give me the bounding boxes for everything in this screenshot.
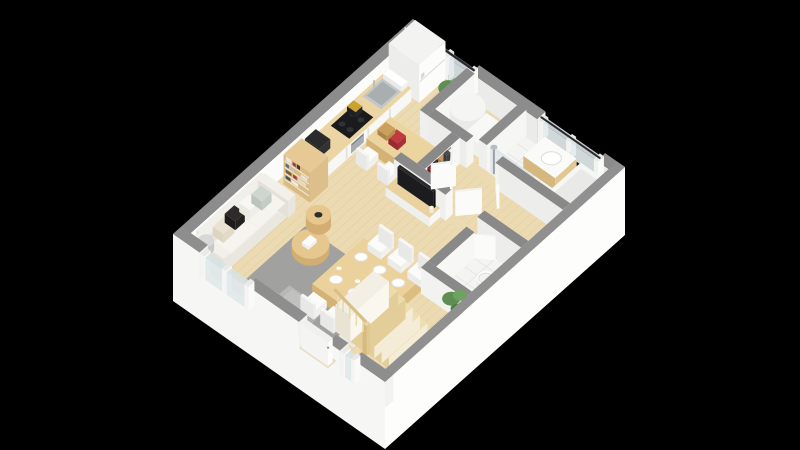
living-hall-door-leaf [455, 190, 481, 217]
plate-6 [392, 279, 405, 287]
dining-chair-1-back [314, 303, 316, 320]
stair-newel-post [367, 323, 371, 356]
dining-chair-4-back [392, 233, 394, 250]
sw-window-frame-5 [351, 358, 354, 384]
floorplan-3d-render [0, 0, 800, 450]
plate-4 [355, 253, 368, 261]
sw-window-frame-1 [201, 253, 205, 280]
cup-2 [355, 279, 360, 283]
sw-window-frame-2 [222, 268, 226, 295]
sw-window-frame-4 [341, 352, 344, 378]
bathroom-door-leaf [497, 185, 500, 209]
wc-door-leaf [475, 234, 496, 260]
bath-window-frame-1 [538, 120, 542, 141]
breakfast-chair-1-back [366, 154, 368, 171]
bath-basin [541, 152, 561, 165]
candle [429, 206, 434, 210]
breakfast-chair-2-back [388, 169, 390, 186]
sw-window-glass-3 [345, 355, 352, 382]
entrance-door [328, 338, 333, 366]
burner-2 [347, 127, 354, 132]
utility-bath-divider-wall [479, 140, 487, 172]
coffee-table-bowl [314, 212, 322, 218]
floorplan-canvas [0, 0, 800, 450]
kitchen-counter-detail [346, 147, 348, 160]
entrance-door-handle [327, 346, 329, 348]
tv [433, 190, 435, 209]
shower-head [490, 145, 497, 150]
plate-1 [329, 275, 342, 283]
cup-1 [336, 266, 341, 270]
burner-4 [357, 117, 364, 122]
hall-door-leaf-2 [450, 165, 453, 189]
sw-window-frame-3 [244, 284, 248, 311]
water-heater [450, 93, 486, 121]
dining-chair-5-back [412, 247, 414, 264]
burner-1 [339, 122, 346, 127]
